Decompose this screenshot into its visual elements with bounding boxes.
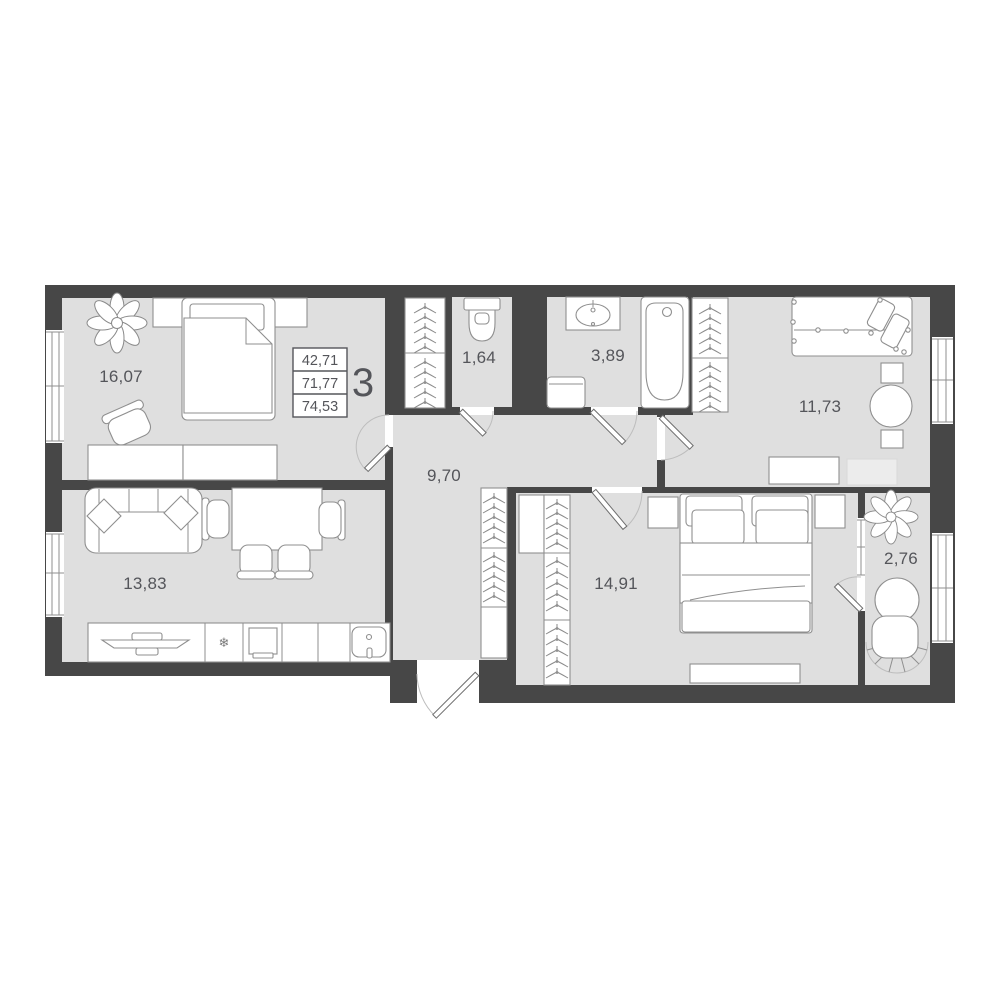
dining-chair [275,545,313,579]
floor-plan-page: ❄ [0,0,1000,1000]
nightstand [648,497,678,528]
wardrobe-niche [405,298,445,408]
dining-chair [319,500,345,540]
room-area-label-bedroom-3: 14,91 [594,574,638,593]
nightstand [815,495,845,528]
dresser [88,445,277,480]
kitchen-sink [352,627,386,658]
sofa [85,488,202,553]
plant [864,490,918,544]
bathroom-sink [566,297,620,330]
floor-plan-canvas: ❄ [0,0,1000,1000]
window-balcony [932,533,953,643]
rug [690,664,800,683]
plant [87,293,147,353]
double-bed [680,494,812,633]
bathtub [641,297,689,408]
dresser [769,457,839,484]
stool [881,363,903,383]
dining-table [232,488,322,550]
rug [847,459,897,485]
dining-chair [202,498,229,540]
room-area-label-bedroom-1: 16,07 [99,367,143,386]
window-bedroom-2 [932,337,953,424]
entrance-door [417,660,479,718]
dining-chair [237,545,275,579]
stove [249,628,277,658]
balcony-glazing [857,518,865,577]
fridge-snowflake-icon: ❄ [219,635,230,650]
room-area-label-balcony: 2,76 [884,549,918,568]
window-bedroom-1 [46,330,64,443]
area-summary-table: 42,71 71,77 74,53 [293,348,347,417]
round-table [875,578,919,622]
room-area-label-hallway: 9,70 [427,466,461,485]
rooms-count-label: 3 [352,361,374,405]
round-table [870,385,912,427]
stool [881,430,903,448]
summary-value: 74,53 [302,399,338,415]
room-area-label-bedroom-2: 11,73 [799,397,841,416]
room-area-label-bathroom: 3,89 [591,346,625,365]
room-area-label-wc: 1,64 [462,348,496,367]
sofa-bed [791,297,912,356]
wardrobe-bedroom-2 [692,298,728,412]
wardrobe-hallway [481,488,507,658]
window-living-kitchen [46,532,64,617]
summary-value: 42,71 [302,353,338,369]
washing-machine [547,377,585,408]
room-area-label-living-kitchen: 13,83 [123,574,167,593]
summary-value: 71,77 [302,376,338,392]
